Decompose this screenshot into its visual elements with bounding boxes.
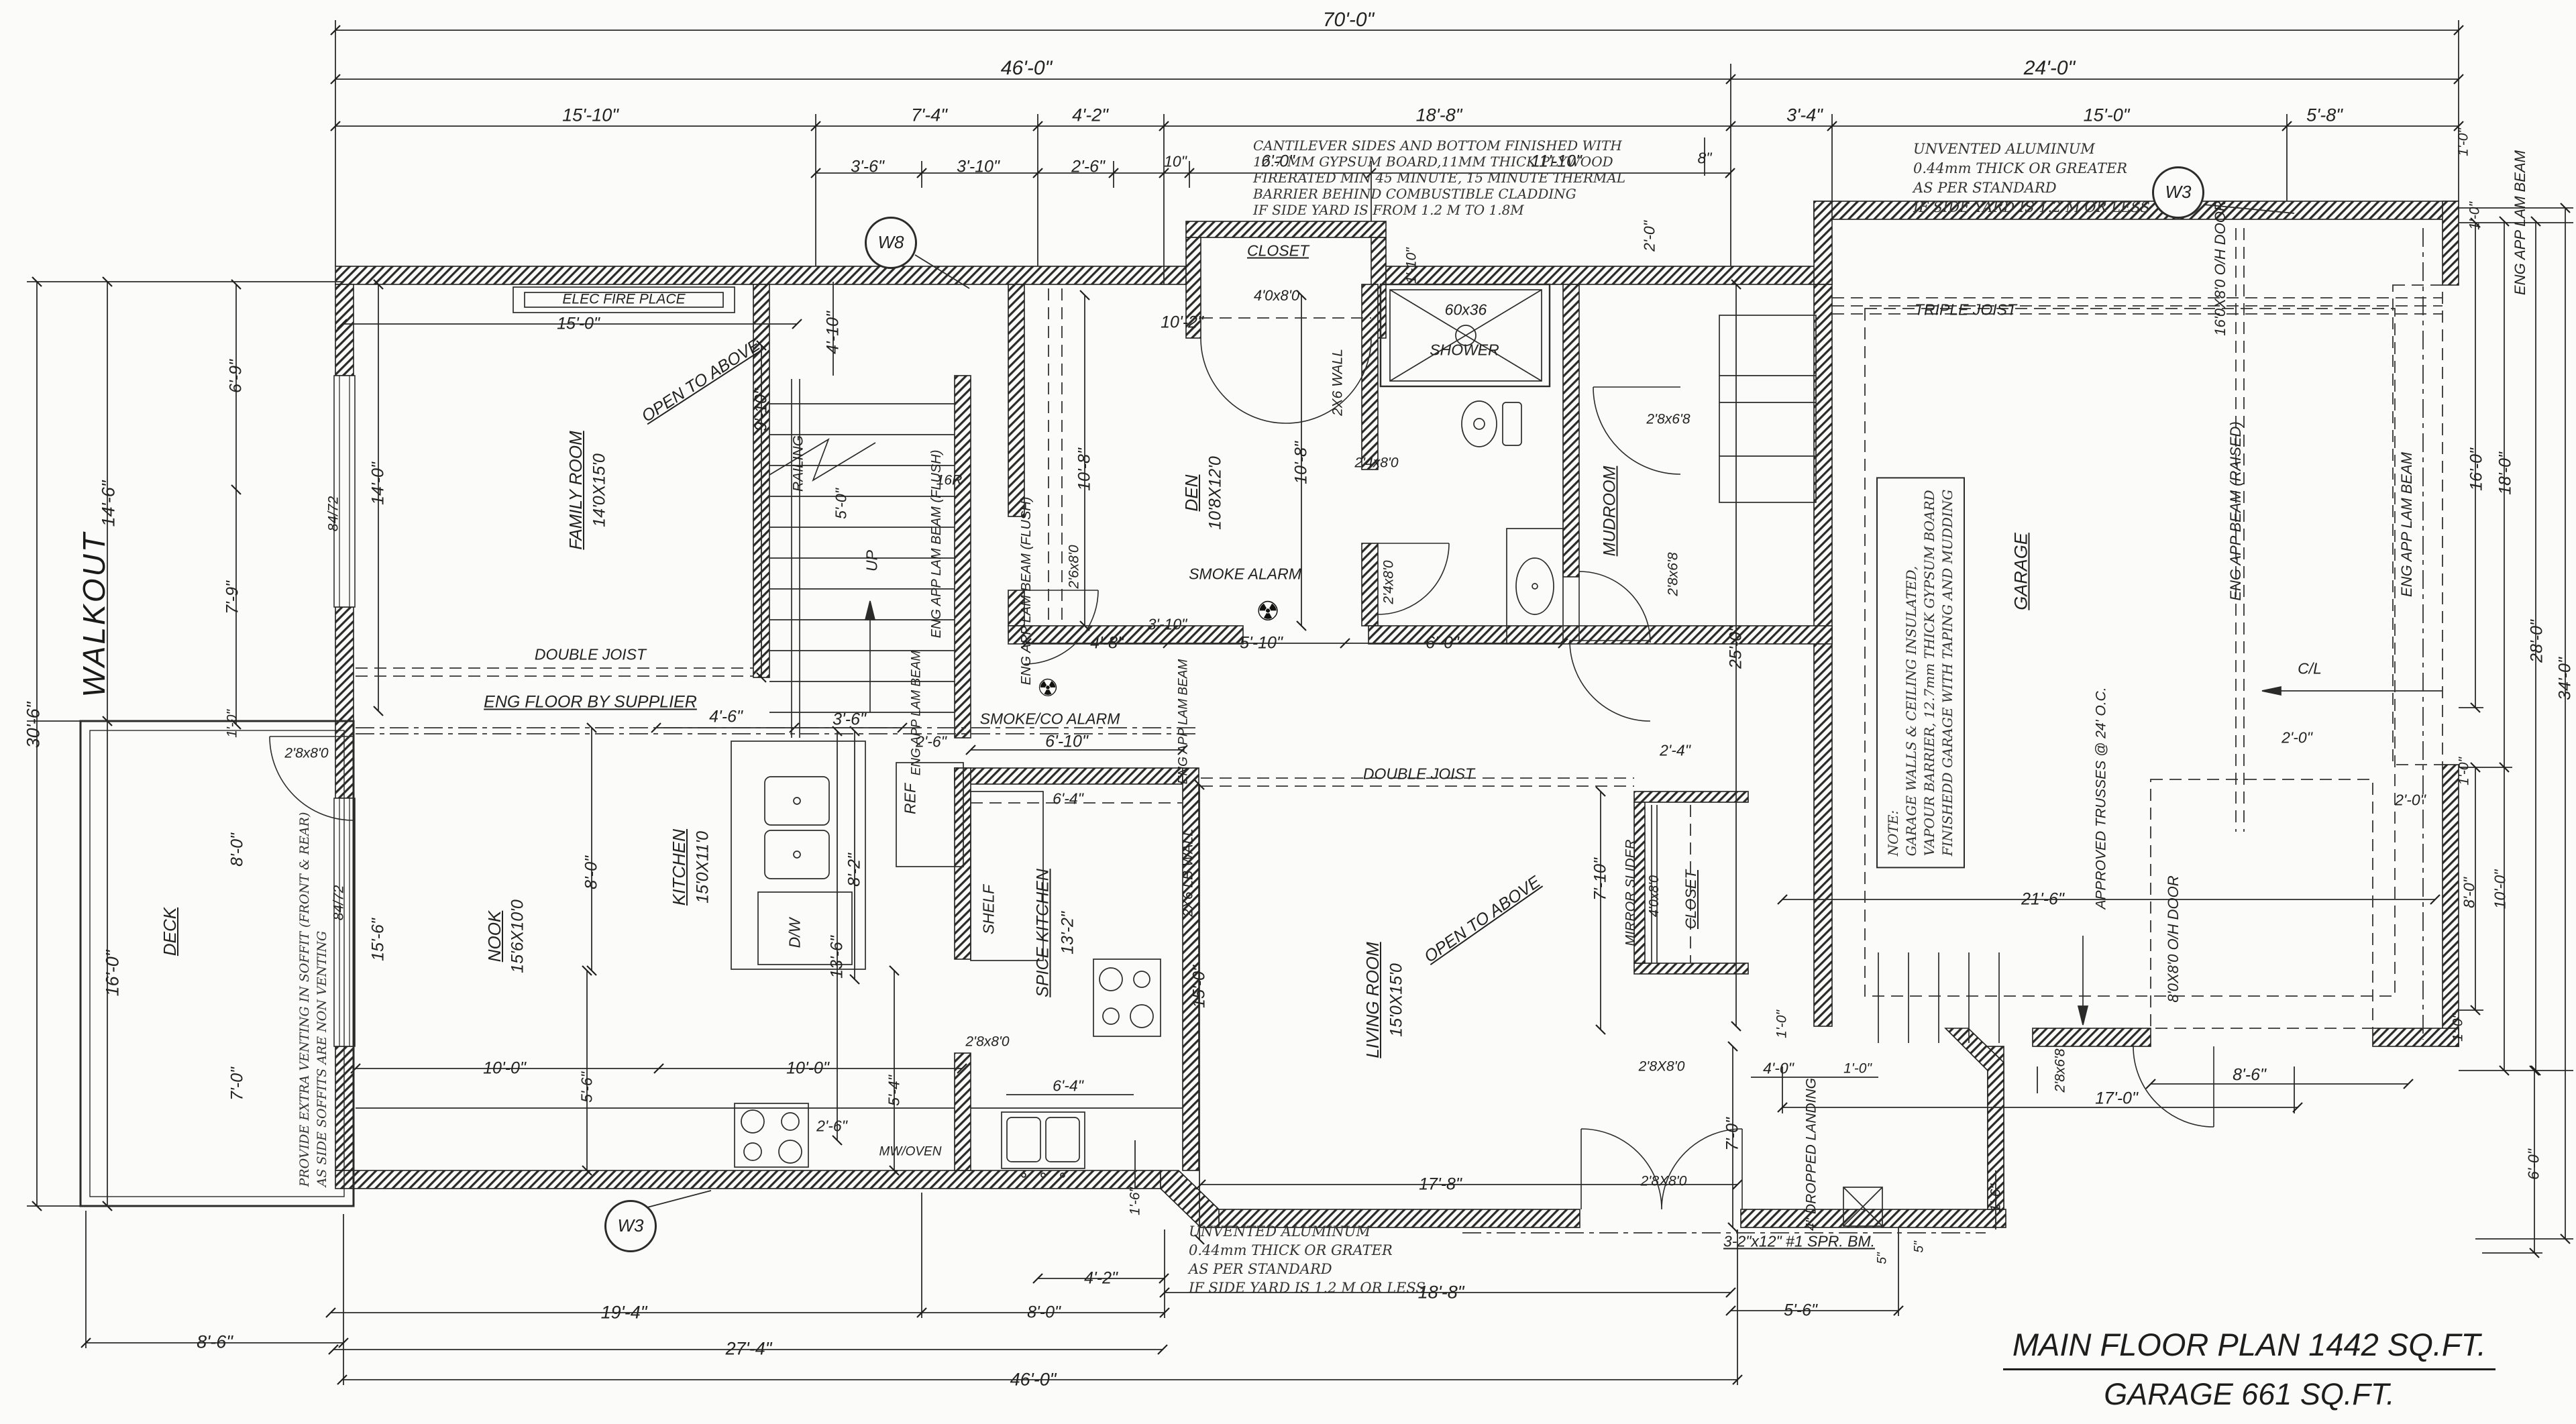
dimension-label: 8'-0"	[584, 856, 600, 889]
dimension-label: 30'-6"	[25, 702, 43, 749]
dimension-label: 3'-6"	[833, 712, 866, 728]
dimension-label: 13'-6"	[829, 936, 846, 979]
cantilever-note: CANTILEVER SIDES AND BOTTOM FINISHED WIT…	[1253, 138, 1625, 218]
dimension-label: 9'-10"	[753, 388, 770, 431]
dimension-label: 10'-0"	[483, 1060, 526, 1077]
unvented-aluminum-note-top: UNVENTED ALUMINUM0.44mm THICK OR GREATER…	[1913, 140, 2150, 217]
dimension-label: 4'-2"	[1084, 1270, 1118, 1287]
annotation-label: 2X6 WALL	[1331, 349, 1345, 416]
dimension-label: 4'-8"	[1090, 635, 1124, 652]
window-tag: W3	[2152, 166, 2204, 219]
dimension-label: 1'-0"	[1775, 1010, 1789, 1038]
dimension-label: 2'-6"	[816, 1119, 847, 1134]
dimension-label: 7'-10"	[1593, 858, 1609, 901]
room-label: GARAGE	[2012, 533, 2031, 610]
dimension-label: 5'-8"	[2306, 107, 2343, 125]
door-size-label: 16'0X8'0 O/H DOOR	[2213, 201, 2228, 336]
dimension-label: 7'-9"	[225, 581, 241, 614]
note-line: IF SIDE YARD IS FROM 1.2 M TO 1.8M	[1253, 202, 1625, 218]
annotation-label: ENG APP LAM BEAM (FLUSH)	[930, 450, 943, 639]
title-block: MAIN FLOOR PLAN 1442 SQ.FT. GARAGE 661 S…	[2003, 1326, 2495, 1412]
dimension-label: 8'-6"	[197, 1333, 233, 1352]
door-size-label: 2'8x6'8	[1646, 413, 1690, 427]
note-line: FIRERATED MIN 45 MINUTE, 15 MINUTE THERM…	[1253, 170, 1625, 186]
room-label: ENG FLOOR BY SUPPLIER	[484, 694, 697, 711]
window-tag: W3	[604, 1200, 657, 1252]
dimension-label: 2'-4"	[1660, 743, 1690, 759]
door-size-label: 2'4x8'0	[1354, 456, 1398, 470]
note-line: GARAGE WALLS & CEILING INSULATED,	[1902, 490, 1921, 857]
smoke-alarm-icon: ☢	[1037, 676, 1059, 700]
note-line: AS PER STANDARD	[1189, 1260, 1426, 1278]
dimension-label: 6'-9"	[228, 360, 245, 393]
dimension-label: 4'-10"	[825, 311, 842, 354]
dimension-label: 34'-0"	[2557, 657, 2574, 700]
annotation-label: SMOKE/CO ALARM	[980, 712, 1120, 727]
note-line: BARRIER BEHIND COMBUSTIBLE CLADDING	[1253, 186, 1625, 202]
dimension-label: 1'-6"	[1989, 1184, 2003, 1212]
annotation-label: DOUBLE JOIST	[535, 647, 646, 663]
garage-finish-note: NOTE:GARAGE WALLS & CEILING INSULATED,VA…	[1876, 478, 1965, 869]
dimension-label: 1'-10"	[1405, 248, 1419, 284]
annotation-label: D/W	[788, 918, 803, 948]
dimension-label: 2'-0"	[2282, 730, 2312, 746]
door-size-label: 4'0x8'0	[1648, 875, 1661, 917]
dimension-label: 6'-4"	[1053, 1079, 1083, 1094]
annotation-label: REF	[903, 783, 918, 814]
note-line: VAPOUR BARRIER, 12.7mm THICK GYPSUM BOAR…	[1921, 490, 1939, 857]
annotation-label: APPROVED TRUSSES @ 24' O.C.	[2094, 687, 2108, 909]
dimension-label: 70'-0"	[1323, 10, 1374, 30]
annotation-label: ENG APP LAM BEAM	[910, 651, 923, 776]
door-size-label: 4'0x8'0	[1254, 288, 1299, 303]
smoke-alarm-icon: ☢	[1256, 598, 1280, 625]
dimension-label: 18'-8"	[1416, 107, 1462, 125]
annotation-label: ENG APP LAM BEAM (FLUSH)	[1020, 497, 1033, 686]
dimension-label: 19'-4"	[601, 1304, 647, 1322]
dimension-label: 24'-0"	[2024, 58, 2075, 78]
annotation-label: 2X6 LB WALL	[1181, 828, 1195, 917]
dimension-label: 25'-0"	[1728, 626, 1745, 669]
room-size-label: 14'0X15'0	[592, 453, 608, 527]
annotation-label: SHELF	[981, 885, 997, 934]
dimension-label: 2'-6"	[916, 734, 947, 750]
dimension-label: 8'-0"	[2462, 877, 2477, 908]
floor-plan-sheet: 70'-0"46'-0"24'-0"15'-10"7'-4"4'-2"18'-8…	[0, 0, 2576, 1424]
dimension-label: 18'-0"	[2498, 452, 2514, 495]
dimension-label: 6'-4"	[1053, 791, 1083, 807]
dimension-label: 2'-0"	[1642, 221, 1658, 252]
dimension-label: 8"	[1698, 151, 1712, 166]
dimension-label: C/L	[2298, 661, 2322, 677]
dimension-label: 27'-4"	[726, 1340, 772, 1358]
door-size-label: 2'8x8'0	[284, 747, 328, 761]
note-line: CANTILEVER SIDES AND BOTTOM FINISHED WIT…	[1253, 138, 1625, 154]
dimension-label: 4'-0"	[1763, 1061, 1794, 1077]
note-line: 0.44mm THICK OR GREATER	[1913, 159, 2150, 178]
room-label: CLOSET	[1247, 243, 1309, 259]
dimension-label: 5'-10"	[1240, 635, 1283, 652]
dimension-label: 14'-0"	[370, 462, 387, 505]
dimension-label: 5'-6"	[580, 1072, 595, 1103]
dimension-label: 6'-10"	[1045, 734, 1088, 751]
annotation-label: TRIPLE JOIST	[1915, 303, 2017, 318]
dimension-label: 6'-0"	[2526, 1149, 2542, 1180]
room-size-label: 15'0X11'0	[695, 831, 712, 903]
dimension-label: 1'-6"	[1128, 1187, 1142, 1215]
dimension-label: 10'-2"	[1161, 315, 1203, 331]
dimension-label: 1'-0"	[225, 710, 239, 738]
dimension-label: 1'-0"	[2468, 202, 2482, 230]
door-size-label: 2'6x8'0	[1067, 545, 1081, 588]
door-size-label: 2'8x6'8	[1666, 552, 1680, 596]
annotation-label: SMOKE ALARM	[1189, 567, 1301, 582]
dimension-label: 17'-8"	[1419, 1176, 1462, 1193]
dimension-label: 14'-6"	[100, 481, 118, 527]
annotation-label: ENG APP LAM BEAM	[2513, 150, 2528, 295]
room-label: LIVING ROOM	[1364, 942, 1381, 1058]
room-size-label: 15'6X10'0	[510, 899, 527, 973]
room-label: CLOSET	[1684, 870, 1699, 929]
room-label: FAMILY ROOM	[567, 431, 584, 549]
dimension-label: 5'-0"	[834, 488, 849, 519]
dimension-label: 10"	[1164, 154, 1187, 170]
annotation-label: 60x36	[1445, 303, 1487, 318]
dimension-label: 4'-6"	[709, 709, 743, 726]
dimension-label: 3'-6"	[851, 159, 884, 176]
dimension-label: 10'-0"	[2493, 870, 2508, 910]
dimension-label: 13'-2"	[1060, 912, 1077, 954]
room-label: KITCHEN	[670, 829, 688, 906]
door-size-label: 2'8x6'8	[2053, 1048, 2068, 1092]
room-label: SPICE KITCHEN	[1035, 869, 1052, 997]
dimension-label: 5"	[1876, 1252, 1889, 1264]
dimension-label: 10'-8"	[1077, 448, 1093, 491]
dimension-label: 2'-6"	[1071, 159, 1105, 176]
dimension-label: 1'-0"	[1843, 1062, 1872, 1076]
dimension-label: 3'-4"	[1786, 107, 1823, 125]
annotation-label: 4" DROPPED LANDING	[1805, 1078, 1819, 1231]
dimension-label: 15'-0"	[557, 316, 600, 333]
annotation-label: 84/72	[332, 885, 346, 921]
plan-subtitle: GARAGE 661 SQ.FT.	[2003, 1370, 2495, 1412]
plan-title: MAIN FLOOR PLAN 1442 SQ.FT.	[2003, 1326, 2495, 1370]
room-label: MUDROOM	[1602, 466, 1619, 557]
dimension-label: 7'-0"	[1725, 1117, 1741, 1151]
dimension-label: 15'-0"	[2084, 107, 2130, 125]
annotation-label: UP	[865, 550, 880, 571]
dimension-label: 1'-0"	[2451, 1014, 2465, 1042]
note-line: NOTE:	[1884, 490, 1902, 857]
annotation-label: DOUBLE JOIST	[1363, 767, 1474, 782]
dimension-label: 8'-0"	[229, 833, 246, 867]
door-size-label: 2'4x8'0	[1382, 560, 1396, 604]
soffit-venting-note: PROVIDE EXTRA VENTING IN SOFFIT (FRONT &…	[296, 812, 331, 1187]
dimension-label: 7'-4"	[911, 107, 947, 125]
note-line: FINISHEDD GARAGE WITH TAPING AND MUDDING	[1939, 490, 1957, 857]
note-line: AS PER STANDARD	[1913, 178, 2150, 198]
note-line: IF SIDE YARD IS 1.2 M OR LESS	[1913, 198, 2150, 217]
dimension-label: 15'-6"	[370, 918, 387, 961]
dimension-label: 21'-6"	[2021, 891, 2064, 908]
beam-dashdot-lines	[356, 228, 2423, 1233]
annotation-label: ENG APP LAM BEAM	[2400, 452, 2414, 597]
unvented-aluminum-note-bottom: UNVENTED ALUMINUM0.44mm THICK OR GRATERA…	[1189, 1222, 1426, 1297]
room-size-label: 15'0X15'0	[1389, 963, 1405, 1037]
annotation-label: RAILING	[792, 435, 806, 492]
dimension-label: 5'-6"	[1784, 1303, 1817, 1319]
note-line: PROVIDE EXTRA VENTING IN SOFFIT (FRONT &…	[296, 812, 313, 1187]
dimension-label: 16'-0"	[104, 950, 122, 997]
door-size-label: 2'8X8'0	[1641, 1174, 1687, 1189]
room-size-label: 10'8X12'0	[1207, 456, 1224, 530]
annotation-label: MIRROR SLIDER	[1624, 840, 1638, 946]
dimension-label: 28'-0"	[2529, 620, 2546, 663]
room-label: 3-2"x12" #1 SPR. BM.	[1723, 1234, 1875, 1250]
dimension-label: 2'-0"	[2395, 793, 2426, 808]
dimension-label: 17'-0"	[2095, 1091, 2138, 1107]
dimension-label: 10'-0"	[786, 1060, 829, 1077]
dimension-label: 5'-4"	[887, 1075, 902, 1106]
dimension-label: 4'-2"	[1072, 107, 1108, 125]
window-tag: W8	[865, 217, 917, 269]
dimension-label: 3'-10"	[957, 159, 1000, 176]
dimension-label: 5"	[1913, 1241, 1926, 1252]
annotation-label: ELEC FIRE PLACE	[562, 292, 685, 307]
dimension-label: 8'-0"	[1027, 1305, 1061, 1321]
dimension-label: 7'-0"	[229, 1067, 246, 1101]
dimension-label: 16'-0"	[2469, 448, 2485, 491]
note-line: UNVENTED ALUMINUM	[1189, 1222, 1426, 1241]
note-line: IF SIDE YARD IS 1.2 M OR LESS	[1189, 1278, 1426, 1297]
dimension-label: 10'-8"	[1293, 441, 1310, 484]
dimension-label: 15'-0"	[1191, 965, 1208, 1008]
room-label: DECK	[161, 908, 178, 956]
note-line: 12.7 MM GYPSUM BOARD,11MM THICK PLYWOOD	[1253, 154, 1625, 170]
room-label: NOOK	[486, 911, 503, 963]
walls	[335, 201, 2459, 1227]
note-line: AS SIDE SOFFITS ARE NON VENTING	[313, 812, 331, 1187]
door-size-label: 2'8X8'0	[1639, 1060, 1685, 1074]
walkout-label: WALKOUT	[78, 531, 109, 698]
annotation-label: 84/72	[327, 496, 341, 532]
dimension-label: 1'-0"	[2457, 128, 2471, 156]
annotation-label: SHOWER	[1430, 343, 1499, 358]
door-size-label: 8'0X8'0 O/H DOOR	[2166, 875, 2181, 1002]
room-label: DEN	[1183, 475, 1200, 512]
dimension-label: 3'-10"	[1148, 617, 1187, 633]
dimension-label: 8'-6"	[2233, 1067, 2266, 1084]
dimension-label: 6'-0"	[1426, 635, 1459, 652]
dimension-label: 8'-2"	[847, 853, 863, 887]
dimension-label: 1'-0"	[2457, 757, 2471, 785]
dimension-label: 15'-10"	[562, 107, 619, 125]
annotation-label: ENG APP BEAM (RAISED)	[2229, 421, 2243, 600]
annotation-label: ENG APP LAM BEAM	[1177, 659, 1190, 785]
dimension-label: 46'-0"	[1001, 58, 1052, 78]
dimension-label: 46'-0"	[1010, 1371, 1057, 1389]
note-line: UNVENTED ALUMINUM	[1913, 140, 2150, 159]
note-line: 0.44mm THICK OR GRATER	[1189, 1241, 1426, 1260]
door-size-label: 2'8x8'0	[965, 1035, 1009, 1049]
annotation-label: MW/OVEN	[879, 1146, 942, 1158]
